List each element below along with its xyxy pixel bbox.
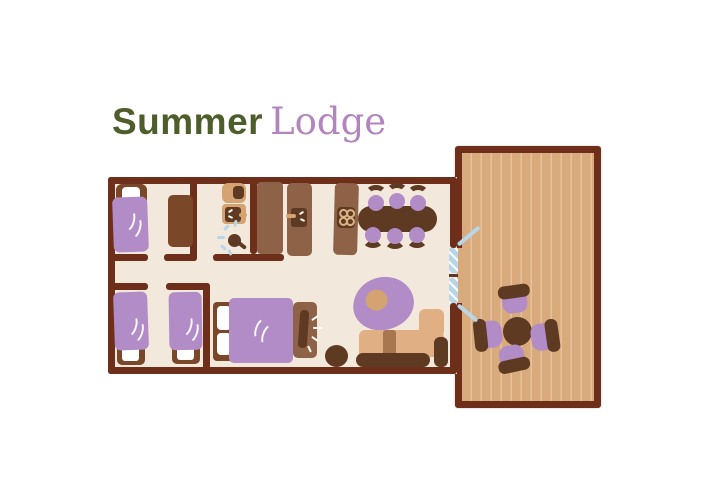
tall-cabinet [257, 182, 283, 254]
french-door-panel [449, 248, 458, 273]
wall-top [108, 177, 457, 184]
double-bed-blanket [229, 298, 293, 363]
wall-right-upper [450, 177, 457, 248]
patio-chair-east [529, 318, 561, 355]
toilet-bowl [233, 186, 244, 199]
floor-pouf [325, 345, 348, 367]
dining-chair [368, 195, 384, 211]
floor-plan-canvas: SummerLodge [0, 0, 707, 500]
french-door-meeting-stile [449, 274, 458, 277]
single-bed-blanket [112, 196, 149, 252]
title-word-lodge: Lodge [270, 100, 386, 143]
dining-chair [389, 193, 405, 209]
french-door-panel [449, 278, 458, 303]
single-bed-blanket [168, 292, 202, 351]
wall-bottom [108, 367, 457, 374]
wall-mid-segment [213, 254, 284, 261]
dining-chair-back [384, 231, 406, 249]
toilet [222, 183, 246, 203]
wall-bedroom2-right [203, 283, 210, 374]
title-word-summer: Summer [112, 101, 263, 142]
sofa-arm-right [434, 337, 448, 367]
sofa-base [356, 353, 430, 367]
shower-spray [217, 236, 225, 239]
wall-bedroom2-top [108, 283, 148, 290]
wall-mid-segment [108, 254, 148, 261]
washbasin-faucet [239, 213, 247, 217]
dining-chair-back [362, 230, 384, 248]
stove [337, 207, 356, 228]
patio-table [503, 317, 532, 346]
patio-chair-north [497, 283, 533, 317]
wall-bathroom-right [250, 177, 257, 254]
dining-chair [410, 195, 426, 211]
stove-counter [333, 183, 359, 256]
lamp-ray [313, 327, 322, 329]
kitchen-sink-counter [287, 183, 312, 256]
page-title: SummerLodge [112, 100, 386, 143]
armchair-cushion [365, 289, 389, 312]
patio-chair-west [472, 317, 504, 353]
kitchen-faucet [286, 214, 296, 218]
wall-right-lower [450, 303, 457, 374]
dining-chair-back [406, 230, 428, 248]
single-bed-blanket [113, 291, 149, 350]
wardrobe [168, 195, 193, 247]
